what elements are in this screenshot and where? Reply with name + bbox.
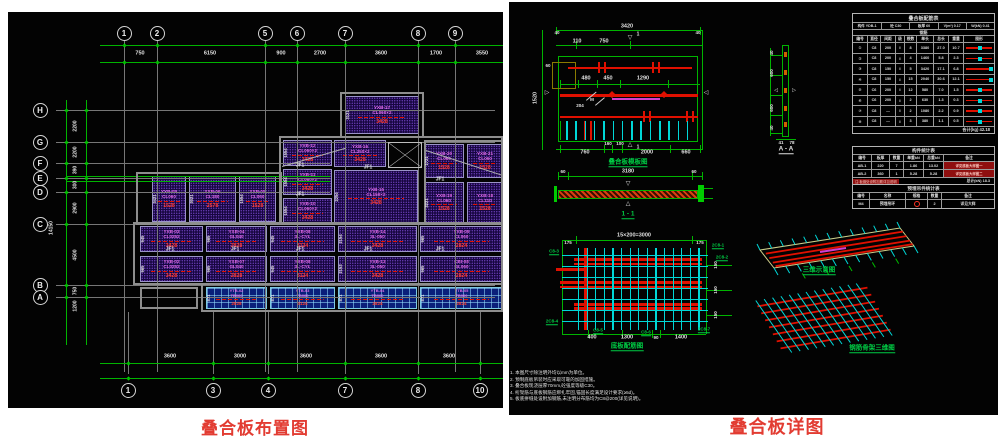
component-summary-table: 构件统计表编号板厚数量单重kN总重kN备注AB-122071.8613.02详见…: [852, 146, 995, 185]
left-dimension: 390: [74, 166, 79, 174]
slab-side-dimension: 965: [421, 236, 425, 243]
table-row: AB-236015.285.28详见底板大样图二: [853, 169, 994, 177]
table-cell: 1080: [916, 106, 933, 116]
slab-dimension: 3428: [354, 157, 366, 163]
slab-dimension: 1528: [438, 165, 450, 171]
iso-truss-tick: [862, 228, 865, 234]
slab-type-label: CL060: [162, 194, 176, 199]
detail-annotation: 175: [564, 241, 572, 246]
detail-annotation: 100: [616, 142, 624, 147]
iso-truss-tick: [874, 226, 877, 232]
table-cell: ⑦: [853, 106, 867, 116]
table-row: ⑥C6200Ⅰ26301.30.3: [853, 95, 994, 106]
table-row: 编号直径间距级根数单长总长重量图形: [853, 35, 994, 42]
beam-label: JF1: [296, 248, 305, 253]
slab-dimension: 2824: [456, 301, 466, 307]
table-cell: [963, 54, 994, 64]
dimension-line: [100, 62, 503, 63]
view-title-formwork: 叠合板模板图: [609, 159, 648, 167]
table-cell: M4: [853, 200, 869, 208]
table-cell: 名称: [869, 193, 905, 199]
iso-truss-tick: [827, 233, 830, 239]
truss-bar: [631, 121, 633, 140]
table-cell: C6: [867, 96, 880, 106]
general-note: 5. 板底拼缝处设附加钢筋,未注明分布筋均为C8@200(详见说明)。: [510, 397, 643, 402]
detail-line: [556, 30, 702, 31]
bottom-dimension: 3600: [443, 354, 455, 360]
iso-truss-tick: [815, 235, 818, 241]
left-dimension: 750: [74, 287, 79, 295]
table-row: ⑤C6200Ⅰ125807.01.5: [853, 84, 994, 95]
detail-line: [542, 30, 543, 150]
slab-type-label: GL040: [229, 264, 243, 269]
detail-line: [556, 149, 702, 150]
table-cell: 8: [904, 43, 916, 53]
detail-annotation: 40: [770, 50, 775, 55]
table-cell: C8: [867, 106, 880, 116]
detail-annotation: 15×200=3000: [617, 233, 651, 239]
detail-line: [556, 268, 584, 271]
detail-annotation: 600: [770, 104, 775, 112]
drawing-sheet: 叠合板布置图 叠合板详图 12567891347810HGFEDCBA75061…: [0, 0, 1000, 441]
table-cell: 380: [916, 117, 933, 127]
rebar-arrow-line: [434, 299, 489, 300]
slab-side-dimension: 965: [207, 266, 211, 273]
precast-slab: YXB-09CL0602824: [420, 226, 503, 252]
rebar-arrow-line: [343, 155, 377, 156]
table-title: 合计(kg) 42.18: [853, 126, 994, 133]
table-cell: 板厚 60: [909, 23, 937, 29]
detail-annotation: △: [626, 201, 631, 207]
slab-type-label: GL060: [454, 264, 468, 269]
detail-line: [560, 121, 561, 140]
detail-line: [612, 145, 613, 153]
detail-line: [770, 133, 782, 134]
table-cell: 构件 YDB-1: [853, 23, 881, 29]
detail-line: [784, 52, 787, 57]
table-cell: 10.7: [948, 43, 963, 53]
truss-bar: [678, 121, 680, 140]
table-cell: 备注: [943, 155, 994, 161]
detail-line: [560, 116, 698, 118]
bottom-dimension: 3600: [164, 354, 176, 360]
detail-line: [560, 94, 698, 97]
detail-line: [554, 186, 557, 202]
rebar-shape-mark: [978, 99, 982, 103]
table-cell: 板厚: [871, 155, 889, 161]
detail-annotation: 660: [681, 150, 690, 156]
slab-side-dimension: 871: [271, 295, 275, 302]
section-hatch-strip: [558, 190, 698, 199]
slab-side-dimension: 871: [421, 295, 425, 302]
balcony-slab: YTB-04TB0602824: [338, 287, 417, 309]
table-cell: ⑥: [853, 96, 867, 106]
mesh-bar-horizontal: [562, 255, 708, 256]
detail-line: [704, 198, 713, 199]
detail-line: [702, 172, 703, 180]
detail-annotation: 150: [714, 286, 719, 294]
table-cell: 单重kN: [903, 155, 923, 161]
detail-annotation: 60: [691, 170, 696, 175]
slab-dimension: 1528: [252, 203, 264, 209]
right-caption: 叠合板详图: [692, 413, 862, 439]
table-row: ⑦C8—Ⅰ210802.20.9: [853, 105, 994, 116]
table-cell: 总重kN: [923, 155, 943, 161]
grid-bubble-top: 5: [258, 26, 273, 41]
table-row: M4预埋吊环2详见大样: [853, 199, 994, 208]
grid-bubble-bottom: 8: [411, 383, 426, 398]
beam-label: JF1: [231, 248, 240, 253]
table-cell: [963, 75, 994, 85]
truss-bar: [622, 121, 624, 140]
grid-bubble-left: D: [33, 185, 48, 200]
beam-label: JF1: [296, 193, 305, 198]
precast-slab: YXB-17CL060×23428: [345, 96, 419, 134]
beam-label: JF1: [364, 166, 373, 171]
overall-dimension: 14150: [50, 221, 55, 235]
rebar-arrow-line: [473, 204, 496, 205]
beam-label: JF1: [166, 248, 175, 253]
grid-bubble-bottom: 4: [261, 383, 276, 398]
slab-dimension: 2824: [456, 273, 468, 279]
top-dimension: 750: [135, 51, 144, 57]
grid-bubble-bottom: 10: [473, 383, 488, 398]
table-cell: [905, 200, 927, 208]
detail-line: [556, 45, 702, 46]
detail-line: [770, 115, 782, 116]
detail-line: [620, 80, 621, 88]
grid-line-horizontal: [56, 178, 330, 179]
table-cell: 数量: [889, 155, 903, 161]
table-row: ④C8150Ⅰ15204030.612.1: [853, 74, 994, 85]
table-cell: 7.0: [933, 85, 948, 95]
slab-dimension: 1528: [163, 203, 175, 209]
truss-bar: [575, 121, 577, 140]
detail-line: [770, 95, 782, 96]
table-cell: [963, 117, 994, 127]
table-cell: Ⅰ: [895, 96, 904, 106]
beam-label: JF1: [436, 178, 445, 183]
table-cell: 15: [904, 75, 916, 85]
iso-truss-tick: [804, 237, 807, 243]
rebar-shape-mark: [978, 88, 982, 92]
grid-line-horizontal: [56, 297, 495, 298]
table-cell: 3420: [916, 64, 933, 74]
grid-line-horizontal: [56, 142, 495, 143]
table-cell: [963, 43, 994, 53]
detail-annotation: 60: [545, 64, 550, 69]
table-cell: 150: [880, 64, 895, 74]
table-cell: 3: [904, 117, 916, 127]
detail-line: [692, 111, 694, 122]
rebar-arrow-line: [216, 271, 256, 272]
detail-line: [704, 188, 713, 189]
slab-dimension: 2828: [231, 273, 243, 279]
table-cell: 详见大样: [941, 200, 994, 208]
table-row: ②C8200Ⅰ414605.82.3: [853, 53, 994, 64]
table-cell: 0.5: [948, 117, 963, 127]
table-cell: ⑧: [853, 117, 867, 127]
iso-mesh-red-bar: [761, 295, 871, 314]
grid-line-horizontal: [56, 224, 495, 225]
table-row: ①C8200Ⅰ8338027.010.7: [853, 42, 994, 53]
detail-line: [668, 80, 669, 88]
plan-line: [66, 181, 330, 182]
slab-side-dimension: 3121: [346, 110, 350, 119]
detail-annotation: 2C8-1: [712, 243, 724, 249]
slab-dimension: 2578: [207, 203, 219, 209]
slab-side-dimension: 1554: [284, 148, 288, 157]
balcony-slab: YTB-03TB0603124: [270, 287, 335, 309]
table-cell: Ⅰ: [895, 54, 904, 64]
balcony-slab: YTB-02TB0602828: [206, 287, 267, 309]
rebar-arrow-line: [281, 271, 324, 272]
precast-slab: YXB-083L-CYL3124: [270, 256, 335, 282]
detail-annotation: 750: [599, 39, 608, 45]
table-cell: Ⅰ: [895, 75, 904, 85]
mesh-bar-horizontal: [562, 321, 708, 322]
slab-type-label: GL040: [229, 234, 243, 239]
table-cell: AB-2: [853, 170, 871, 177]
iso-truss-tick: [897, 222, 900, 228]
top-dimension: 3550: [476, 51, 488, 57]
table-cell: W(kN) 0.41: [966, 23, 994, 29]
rebar-schedule-table: 叠合板配筋表构件 YDB-1砼 C30板厚 60V(m³) 0.17W(kN) …: [852, 13, 995, 134]
rebar-arrow-line: [434, 271, 489, 272]
slab-side-dimension: 871: [207, 295, 211, 302]
rebar-arrow-line: [348, 198, 404, 199]
iso-green-tick: [849, 266, 852, 271]
table-title: 预埋吊件统计表: [853, 185, 994, 192]
slab-type-label: 3L-050: [370, 234, 385, 239]
table-cell: 1460: [916, 54, 933, 64]
table-cell: 2.2: [933, 106, 948, 116]
detail-line: [560, 80, 561, 88]
general-note: 3. 叠合板现浇层厚70mm,砼强度等级C30。: [510, 384, 597, 389]
grid-bubble-top: 7: [338, 26, 353, 41]
detail-line: [770, 48, 771, 136]
truss-bar: [687, 121, 689, 140]
table-row: ⑧C8—Ⅰ33801.10.5: [853, 116, 994, 127]
grid-bubble-top: 1: [117, 26, 132, 41]
table-footer: 总计(kN) 18.3: [967, 179, 994, 184]
iso-truss-tick: [786, 266, 790, 273]
truss-bar: [640, 121, 642, 140]
grid-bubble-left: G: [33, 135, 48, 150]
iso-truss-tick: [769, 242, 772, 248]
table-title: 构件统计表: [853, 147, 994, 154]
mesh-bar-horizontal: [562, 277, 708, 278]
table-cell: 200: [880, 96, 895, 106]
detail-line: [558, 172, 559, 180]
table-cell: 580: [916, 85, 933, 95]
detail-line: [784, 122, 787, 127]
slab-dimension: 2824: [456, 243, 468, 249]
precast-slab: YXB-07GL0402828: [206, 256, 267, 282]
detail-line: [784, 88, 787, 93]
detail-annotation: 2000: [641, 150, 653, 156]
top-dimension: 3600: [375, 51, 387, 57]
detail-line: [560, 145, 561, 153]
left-dimension: 300: [74, 181, 79, 189]
table-cell: 间距: [880, 36, 895, 42]
grid-bubble-left: C: [33, 217, 48, 232]
table-cell: 5: [904, 64, 916, 74]
detail-annotation: 600: [770, 69, 775, 77]
grid-line-vertical: [124, 41, 125, 372]
table-cell: 1.5: [948, 85, 963, 95]
grid-line-horizontal: [56, 110, 495, 111]
grid-bubble-bottom: 1: [121, 383, 136, 398]
grid-bubble-top: 8: [411, 26, 426, 41]
table-cell: 200: [880, 54, 895, 64]
rebar-arrow-line: [431, 204, 457, 205]
slab-type-label: CL060: [437, 198, 451, 203]
slab-type-label: CL0252: [163, 264, 179, 269]
detail-line: [692, 236, 693, 244]
table-cell: 根数: [904, 36, 916, 42]
detail-annotation: 3420: [621, 24, 633, 30]
table-red-note: 注:板缝处设附加筋详见说明: [853, 179, 899, 184]
dimension-line: [86, 100, 87, 345]
truss-bar: [613, 121, 615, 140]
detail-line: [560, 84, 700, 85]
truss-bar: [566, 121, 568, 140]
rebar-arrow-line: [281, 299, 324, 300]
precast-slab: YXB-19CL0601528: [424, 182, 464, 223]
grid-line-vertical: [265, 41, 266, 372]
detail-annotation: 90: [653, 336, 658, 341]
iso-rebar: [769, 236, 906, 258]
detail-line: [630, 41, 631, 49]
table-cell: —: [880, 117, 895, 127]
detail-annotation: 110: [573, 39, 582, 45]
iso-truss-tick: [839, 231, 842, 237]
slab-type-label: CL150×2: [366, 192, 385, 197]
detail-line: [784, 106, 787, 111]
detail-line: [568, 172, 569, 180]
table-cell: 2: [927, 200, 941, 208]
grid-line-vertical: [297, 41, 298, 372]
table-cell: C8: [867, 64, 880, 74]
table-cell: AB-1: [853, 162, 871, 169]
detail-line: [700, 145, 701, 153]
table-cell: 12: [904, 85, 916, 95]
iso-truss-tick: [902, 248, 906, 255]
rebar-arrow-line: [351, 299, 403, 300]
table-cell: C8: [867, 43, 880, 53]
detail-annotation: 204: [576, 104, 584, 109]
iso-truss-tick: [844, 257, 848, 264]
truss-bar: [585, 121, 587, 140]
slab-side-dimension: 945: [141, 236, 145, 243]
table-cell: C8: [867, 54, 880, 64]
table-cell: ④: [853, 75, 867, 85]
table-cell: 预埋吊环: [869, 200, 905, 208]
rebar-arrow-line: [431, 163, 457, 164]
slab-side-dimension: 2153: [339, 264, 343, 273]
table-cell: 编号: [853, 155, 871, 161]
rebar-arrow-line: [216, 241, 256, 242]
iso-mesh-red-bar: [777, 323, 887, 342]
table-cell: 27.0: [933, 43, 948, 53]
beam-label: JF1: [296, 164, 305, 169]
table-cell: 17.1: [933, 64, 948, 74]
table-cell: 0.3: [948, 96, 963, 106]
precast-slab: CBI-08GL0602824: [420, 256, 503, 282]
table-cell: Ⅰ: [895, 64, 904, 74]
precast-slab: YXB-133L-0503428: [338, 256, 417, 282]
slab-type-label: CL250×2: [350, 149, 369, 154]
general-note: 2. 预制底板吊装时应采取可靠的加固措施。: [510, 378, 598, 383]
truss-bar: [650, 121, 652, 140]
rebar-shape-mark: [978, 120, 982, 124]
slab-side-dimension: 1554: [240, 194, 244, 203]
detail-line: [697, 121, 698, 140]
table-cell: 规格: [905, 193, 927, 199]
detail-line: [598, 62, 600, 73]
table-row: AB-122071.8613.02详见底板大样图一: [853, 161, 994, 169]
dimension-line: [100, 363, 503, 364]
slab-dimension: 1528: [438, 206, 450, 212]
table-cell: 630: [916, 96, 933, 106]
grid-line-vertical: [455, 41, 456, 372]
table-cell: 12.1: [948, 75, 963, 85]
table-cell: 150: [880, 75, 895, 85]
table-cell: 1.3: [933, 96, 948, 106]
precast-slab: YXB-10CL060×23428: [283, 198, 332, 224]
table-cell: 30.6: [933, 75, 948, 85]
slab-dimension: 3428: [372, 273, 384, 279]
detail-line: [670, 145, 671, 153]
detail-line: [706, 290, 732, 291]
detail-annotation: 1: [637, 33, 640, 38]
view-title-mesh: 底板配筋图: [611, 343, 644, 351]
view-title-saa: A - A: [779, 146, 794, 154]
slab-type-label: CL060: [455, 234, 469, 239]
detail-line: [576, 236, 577, 244]
bottom-dimension: 3600: [375, 354, 387, 360]
table-cell: Ⅰ: [895, 117, 904, 127]
grid-bubble-bottom: 3: [206, 383, 221, 398]
detail-line: [568, 67, 692, 69]
beam-label: JF1: [364, 248, 373, 253]
table-cell: 总长: [933, 36, 948, 42]
precast-slab: YXB-05CL0601528: [239, 176, 276, 222]
detail-annotation: C8-5: [593, 328, 603, 334]
table-cell: 数量: [927, 193, 941, 199]
table-cell: ②: [853, 54, 867, 64]
detail-annotation: C8-6: [641, 330, 651, 336]
top-dimension: 1700: [430, 51, 442, 57]
general-note: 4. 桁架筋与底板钢筋应绑扎牢固,锚固长度满足设计要求(≥5d)。: [510, 391, 637, 396]
detail-annotation: 1290: [637, 76, 649, 82]
table-cell: 5.28: [923, 170, 943, 177]
detail-annotation: 40: [695, 31, 700, 36]
dimension-line: [100, 45, 503, 46]
detail-annotation: ▷: [792, 89, 796, 94]
table-cell: 级: [895, 36, 904, 42]
grid-line-horizontal: [56, 192, 330, 193]
table-cell: 2: [904, 96, 916, 106]
truss-bar: [594, 121, 596, 140]
iso-truss-tick: [856, 255, 860, 262]
detail-line: [784, 70, 787, 75]
iso-green-tick: [872, 262, 875, 267]
detail-annotation: M: [590, 98, 594, 103]
truss-bar: [668, 121, 670, 140]
detail-line: [562, 240, 706, 241]
